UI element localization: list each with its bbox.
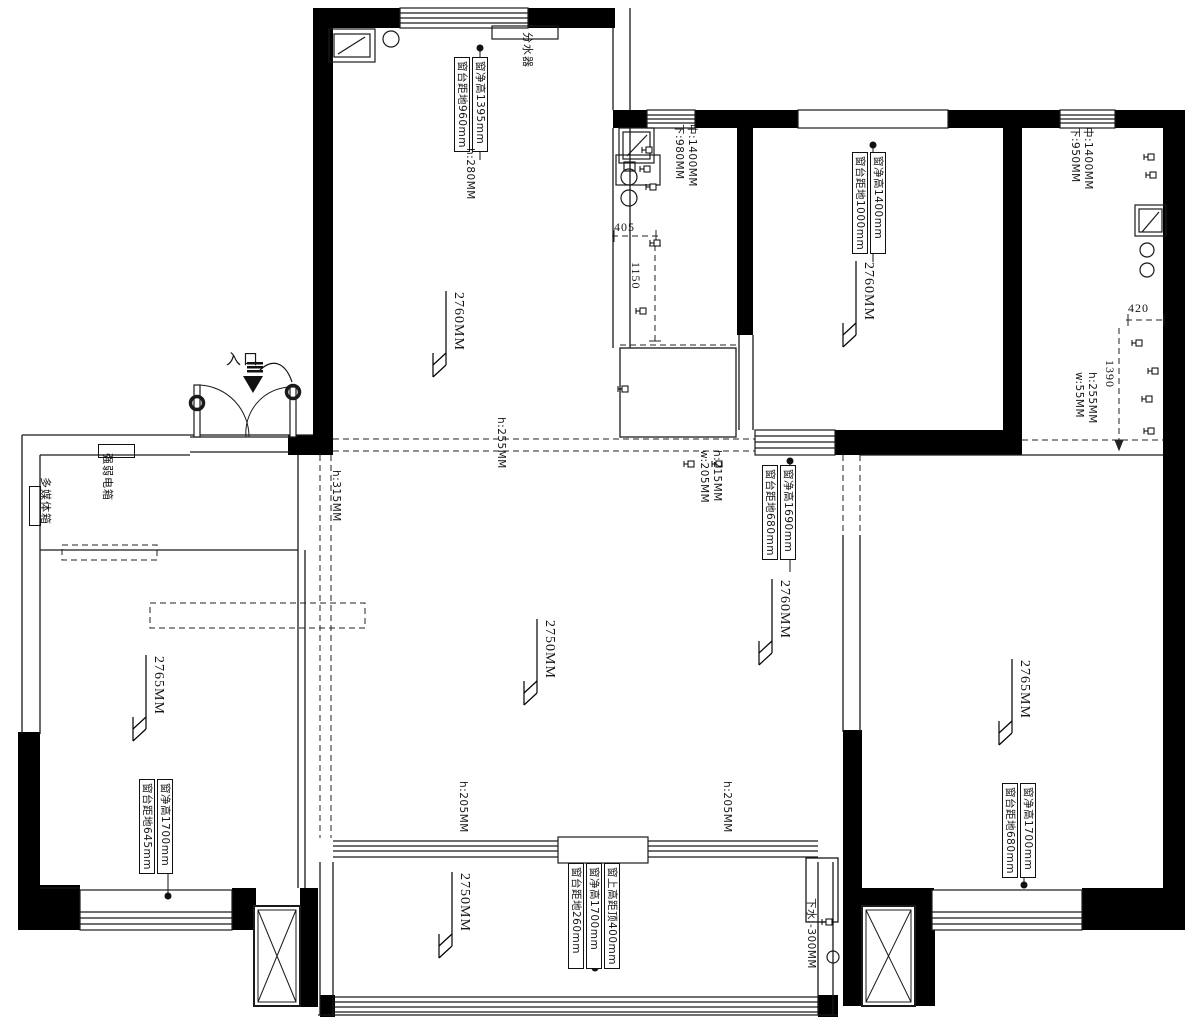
beam-label-h205-left: h:205MM (457, 781, 469, 833)
annotation-line: 窗台距地260mm (568, 863, 584, 969)
entrance-door (191, 385, 300, 437)
beam-label-line: w:205MM (697, 450, 710, 503)
annotation-line: 窗台距地645mm (139, 779, 155, 874)
annotation-line: 窗台距地960mm (454, 57, 470, 152)
annotation-line: 窗净高1700mm (586, 863, 602, 969)
socket-icons (618, 147, 1158, 925)
beam-label-line: h:255MM (1085, 372, 1098, 424)
electric-box-icon (98, 444, 135, 458)
room-label-bedroom-right: 2765MM (1016, 660, 1032, 719)
basin-icon (621, 190, 637, 206)
room-label-kitchen: 2760MM (450, 292, 466, 351)
windows (80, 8, 1115, 1012)
annotation-line: 窗净高1700mm (1020, 783, 1036, 878)
room-label-bedroom-left: 2765MM (150, 656, 166, 715)
wall-height-line: 下:950MM (1068, 127, 1081, 190)
dimension-405: 405 (614, 220, 635, 235)
dimension-1390: 1390 (1102, 360, 1117, 388)
room-label-bedroom-top: 2760MM (860, 262, 876, 321)
beam-dashed-lines (62, 236, 1166, 838)
annotation-line: 窗台距地680mm (1002, 783, 1018, 878)
beam-label-h255: h:255MM (495, 417, 507, 469)
window-annotation-bedroom-right: 窗净高1700mm 窗台距地680mm (1000, 783, 1036, 878)
wall-height-line: 中:1400MM (1081, 127, 1094, 190)
electric-box-label: 强弱电箱 (100, 453, 116, 501)
annotation-line: 窗台距地1000mm (852, 152, 868, 254)
annotation-line: 窗净高1400mm (870, 152, 886, 254)
wall-height-bath-right: 中:1400MM 下:950MM (1068, 127, 1094, 190)
beam-label-h280: h:280MM (464, 148, 476, 200)
window-annotation-bedroom-top: 窗净高1400mm 窗台距地1000mm (850, 152, 886, 254)
media-box-icon (29, 486, 41, 526)
window-annotation-balcony: 窗上高距顶400mm 窗净高1700mm 窗台距地260mm (566, 863, 620, 969)
annotation-line: 窗净高1395mm (472, 57, 488, 152)
beam-label-h215-w205: h:215MM w:205MM (697, 450, 723, 503)
annotation-line: 窗上高距顶400mm (604, 863, 620, 969)
beam-label-h205-right: h:205MM (721, 781, 733, 833)
manifold-label: 分水器 (520, 32, 536, 68)
sink-icon (383, 31, 399, 47)
annotation-leaders (165, 45, 1027, 971)
basin-icon (1140, 243, 1154, 257)
dimension-1150: 1150 (628, 262, 643, 290)
basin-icon (1140, 263, 1154, 277)
beam-label-line: h:215MM (710, 450, 723, 503)
entrance-label: 入口 (226, 348, 260, 369)
annotation-line: 窗净高1700mm (157, 779, 173, 874)
wall-height-line: 下:980MM (672, 124, 685, 187)
room-label-living: 2750MM (541, 620, 557, 679)
beam-label-h315: h:315MM (330, 470, 342, 522)
dimension-420: 420 (1128, 301, 1149, 316)
window-annotation-dining: 窗净高1690mm 窗台距地680mm (760, 465, 796, 560)
beam-label-h255-w55: h:255MM w:55MM (1072, 372, 1098, 424)
beam-label-line: w:55MM (1072, 372, 1085, 424)
drain-label: 下水:-300MM (804, 898, 819, 969)
wall-height-bath-mid: 中:1400MM 下:980MM (672, 124, 698, 187)
room-label-dining: 2760MM (776, 580, 792, 639)
wall-height-line: 中:1400MM (685, 124, 698, 187)
floor-plan: 2760MM 2760MM 2760MM 2750MM 2765MM 2765M… (0, 0, 1200, 1021)
window-annotation-kitchen: 窗净高1395mm 窗台距地960mm (452, 57, 488, 152)
annotation-line: 窗净高1690mm (780, 465, 796, 560)
window-annotation-bedroom-left: 窗净高1700mm 窗台距地645mm (137, 779, 173, 874)
annotation-line: 窗台距地680mm (762, 465, 778, 560)
room-label-balcony: 2750MM (456, 873, 472, 932)
shower-icon (1135, 205, 1166, 236)
